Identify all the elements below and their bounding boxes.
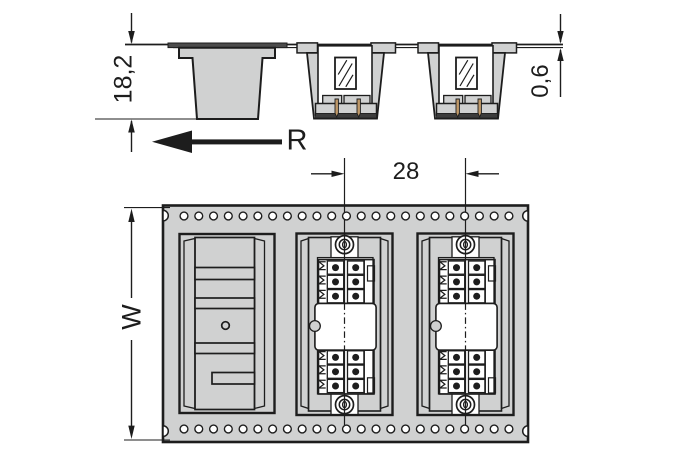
sprocket-hole — [328, 425, 336, 433]
sprocket-hole — [195, 212, 203, 220]
arrowhead-left-icon — [466, 171, 479, 177]
arrowhead-down-icon — [128, 31, 135, 44]
splice-notch — [163, 210, 168, 221]
splice-notch — [163, 426, 168, 437]
sprocket-hole — [224, 425, 232, 433]
arrowhead-up-icon — [128, 120, 135, 133]
sprocket-hole — [387, 212, 395, 220]
sprocket-hole — [239, 425, 247, 433]
sprocket-hole — [402, 212, 410, 220]
sprocket-hole — [313, 425, 321, 433]
arrowhead-right-icon — [332, 171, 345, 177]
sprocket-hole — [402, 425, 410, 433]
feed-direction-arrow-icon — [152, 131, 282, 154]
sprocket-hole — [357, 212, 365, 220]
top-view-empty-pocket — [180, 234, 275, 413]
arrowhead-down-icon — [557, 31, 563, 44]
pocket-outline — [180, 234, 275, 413]
pocket-rib — [195, 298, 255, 309]
sprocket-hole — [490, 425, 498, 433]
sprocket-hole — [298, 212, 306, 220]
dimension-pocket-depth-label: 18,2 — [112, 55, 137, 104]
sprocket-hole — [416, 212, 424, 220]
sprocket-hole — [343, 425, 351, 433]
sprocket-hole — [195, 425, 203, 433]
sprocket-hole — [372, 425, 380, 433]
sprocket-hole — [283, 425, 291, 433]
reel-direction-label: R — [287, 127, 308, 156]
sprocket-hole — [431, 212, 439, 220]
sprocket-hole — [505, 212, 513, 220]
sprocket-hole — [298, 425, 306, 433]
sprocket-hole — [372, 212, 380, 220]
sprocket-hole — [446, 212, 454, 220]
sprocket-hole — [254, 425, 262, 433]
sprocket-hole — [239, 212, 247, 220]
sprocket-hole — [387, 425, 395, 433]
arrowhead-down-icon — [128, 426, 134, 439]
sprocket-hole — [254, 212, 262, 220]
sprocket-hole — [476, 212, 484, 220]
sprocket-hole — [476, 425, 484, 433]
sprocket-hole — [343, 212, 351, 220]
pocket-slot — [212, 373, 255, 385]
dimension-tape-width-label: W — [119, 304, 146, 329]
sprocket-hole — [269, 425, 277, 433]
dimension-tape-thickness-lines — [557, 14, 563, 97]
sprocket-hole — [269, 212, 277, 220]
sprocket-hole — [446, 425, 454, 433]
sprocket-hole — [180, 425, 188, 433]
sprocket-holes-top — [180, 212, 513, 220]
sprocket-hole — [210, 212, 218, 220]
sprocket-hole — [431, 425, 439, 433]
arrowhead-up-icon — [128, 209, 134, 222]
drawing-canvas — [0, 0, 697, 472]
sprocket-hole — [461, 212, 469, 220]
dimension-tape-thickness-label: 0,6 — [529, 64, 553, 97]
side-section-view — [95, 13, 564, 153]
sprocket-hole — [505, 425, 513, 433]
empty-pocket-section — [179, 48, 275, 119]
pocket-rib — [195, 343, 255, 354]
sprocket-hole — [416, 425, 424, 433]
tape-top-view — [163, 158, 528, 442]
sprocket-holes-bottom — [180, 425, 513, 433]
splice-notch — [523, 211, 528, 222]
sprocket-hole — [224, 212, 232, 220]
technical-drawing: 18,2 0,6 R 28 W — [0, 0, 697, 472]
sprocket-hole — [210, 425, 218, 433]
arrowhead-up-icon — [557, 48, 563, 61]
sprocket-hole — [283, 212, 291, 220]
splice-notch — [523, 426, 528, 437]
sprocket-hole — [328, 212, 336, 220]
sprocket-hole — [180, 212, 188, 220]
sprocket-hole — [461, 425, 469, 433]
pocket-rib — [195, 268, 255, 280]
sprocket-hole — [313, 212, 321, 220]
sprocket-hole — [357, 425, 365, 433]
sprocket-hole — [490, 212, 498, 220]
dimension-pocket-pitch-label: 28 — [393, 160, 420, 184]
